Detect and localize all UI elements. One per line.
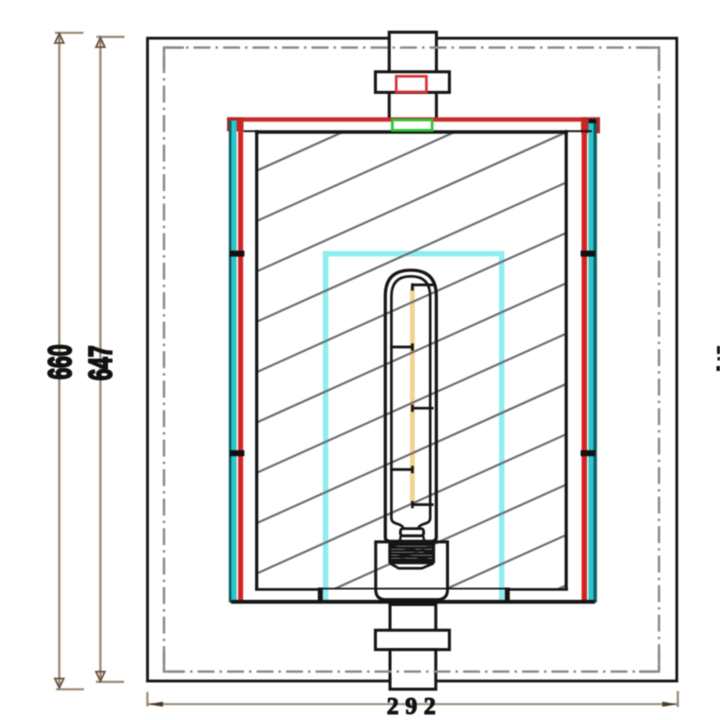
svg-text:660: 660 <box>41 344 78 379</box>
svg-text:647: 647 <box>82 345 119 380</box>
svg-text:292: 292 <box>387 694 443 720</box>
